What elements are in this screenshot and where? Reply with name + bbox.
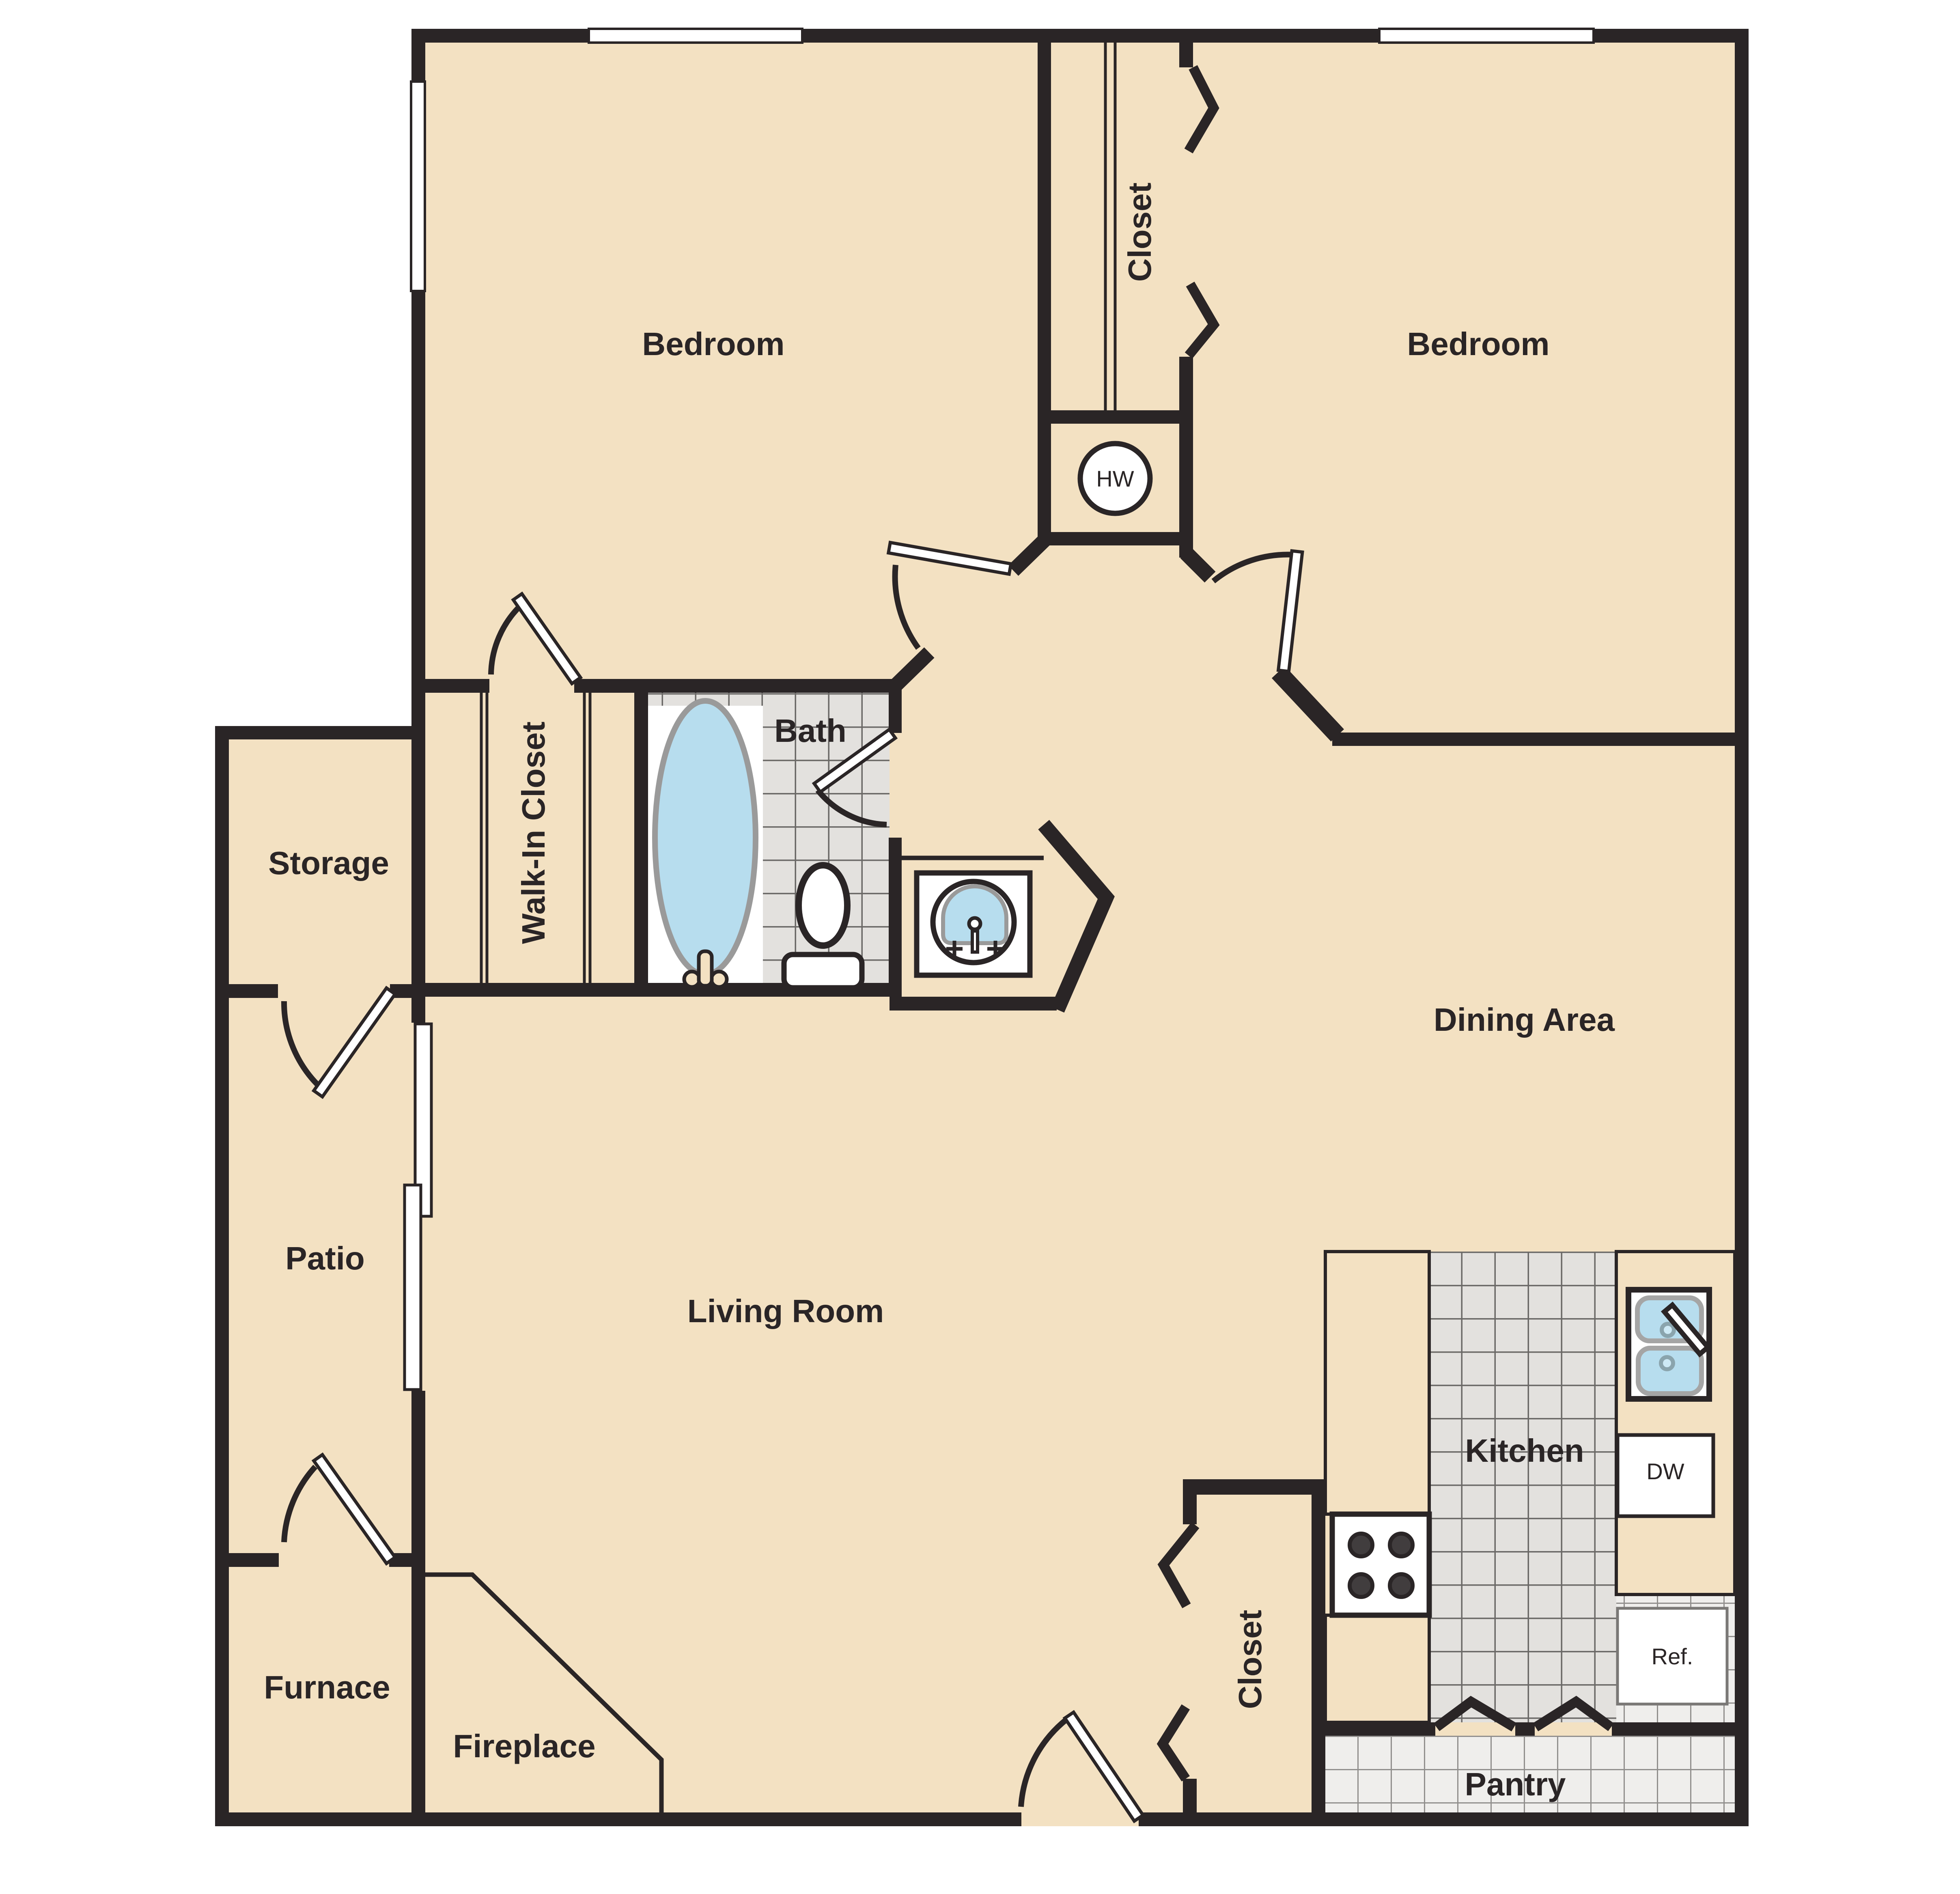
svg-text:Fireplace: Fireplace [453,1728,595,1764]
svg-text:Storage: Storage [268,845,389,881]
svg-text:Bedroom: Bedroom [1407,326,1549,362]
svg-text:Living Room: Living Room [687,1293,884,1329]
svg-text:Pantry: Pantry [1465,1766,1566,1802]
svg-text:Ref.: Ref. [1652,1644,1693,1669]
svg-text:Closet: Closet [1122,183,1158,282]
svg-text:Closet: Closet [1232,1610,1268,1709]
svg-text:Dining Area: Dining Area [1434,1002,1615,1038]
svg-text:HW: HW [1096,466,1134,491]
svg-text:Kitchen: Kitchen [1465,1433,1584,1469]
svg-text:Walk-In Closet: Walk-In Closet [515,722,551,944]
svg-text:Furnace: Furnace [264,1669,390,1705]
svg-text:Patio: Patio [285,1240,365,1276]
svg-text:Bedroom: Bedroom [642,326,784,362]
svg-text:Bath: Bath [774,713,846,749]
svg-text:DW: DW [1646,1459,1684,1484]
